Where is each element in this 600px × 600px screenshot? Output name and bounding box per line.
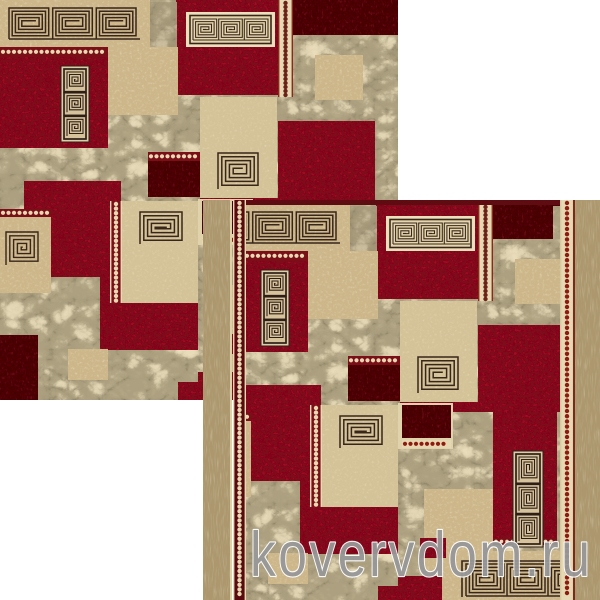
svg-text:kovervdom.ru: kovervdom.ru	[250, 520, 592, 590]
